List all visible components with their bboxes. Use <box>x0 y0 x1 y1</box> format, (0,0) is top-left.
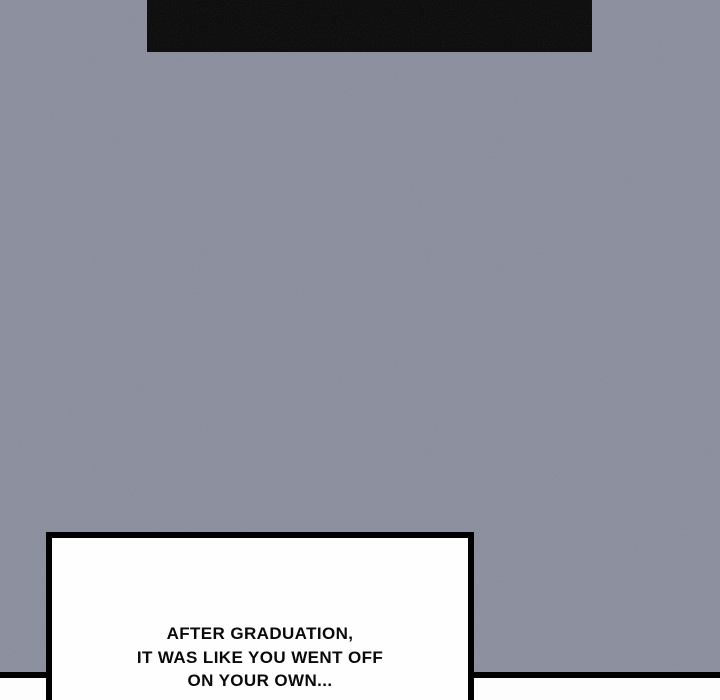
dialogue-line: AFTER GRADUATION, <box>52 622 468 646</box>
dialogue-text: AFTER GRADUATION, IT WAS LIKE YOU WENT O… <box>52 622 468 693</box>
panel-top-black-bar <box>147 0 592 52</box>
dialogue-line: IT WAS LIKE YOU WENT OFF <box>52 646 468 670</box>
speech-bubble: AFTER GRADUATION, IT WAS LIKE YOU WENT O… <box>46 532 474 700</box>
dialogue-line: ON YOUR OWN... <box>52 669 468 693</box>
comic-panel-view: AFTER GRADUATION, IT WAS LIKE YOU WENT O… <box>0 0 720 700</box>
